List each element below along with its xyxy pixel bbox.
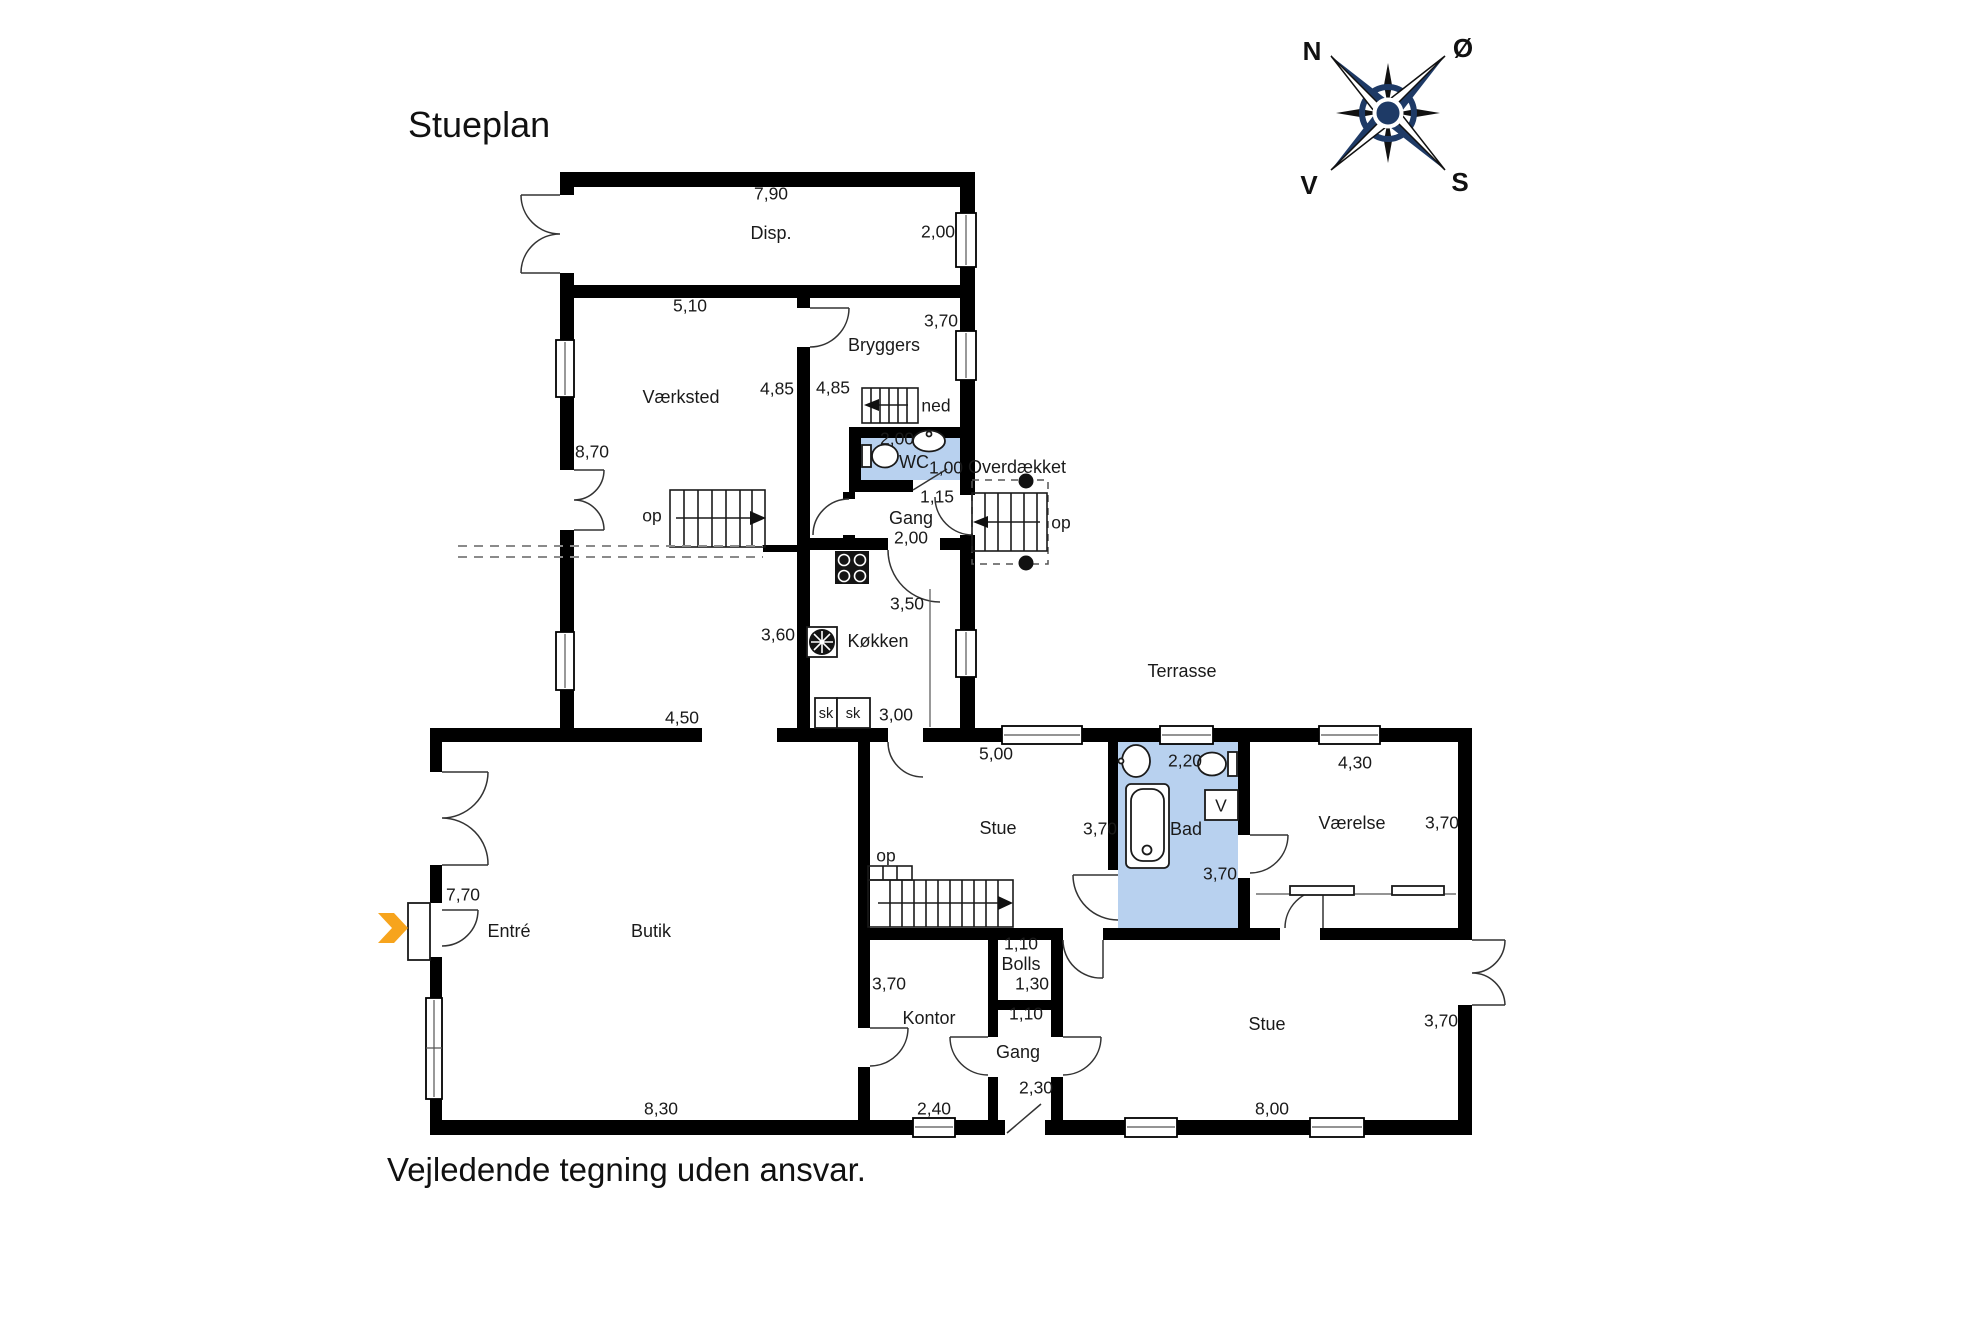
room-label-bryggers: Bryggers (848, 336, 920, 354)
double-door-disp (521, 195, 560, 273)
room-label-wc: WC (899, 453, 929, 471)
door-gang-vaerksted (813, 499, 849, 535)
stairs-outdoor-up (972, 474, 1048, 571)
stair-label-op-vaerksted: op (642, 507, 661, 525)
stove-icon (835, 551, 869, 584)
dim-vaerelse-width: 4,30 (1338, 754, 1372, 772)
dim-butik-top: 4,50 (665, 709, 699, 727)
door-kontor-gang (950, 1037, 988, 1075)
wc-sink-icon (913, 431, 945, 452)
dim-wc-width: 2,00 (880, 430, 914, 448)
dim-koekken-bottom: 3,00 (879, 706, 913, 724)
double-door-butik (442, 772, 488, 865)
dim-stue-mid-depth: 3,70 (1083, 820, 1117, 838)
room-label-stue-mid: Stue (979, 819, 1016, 837)
dim-koekken-depth: 3,50 (890, 595, 924, 613)
dim-gang-north-depth: 2,00 (894, 529, 928, 547)
dim-bryggers-depth2: 4,85 (816, 379, 850, 397)
room-label-vaerksted: Værksted (642, 388, 719, 406)
room-label-gang-south: Gang (996, 1043, 1040, 1061)
dim-bolls-width: 1,10 (1004, 935, 1038, 953)
dim-vaerksted-width: 5,10 (673, 297, 707, 315)
bathtub-icon (1126, 784, 1169, 868)
compass-east-label: Ø (1453, 33, 1473, 63)
room-label-stue-south: Stue (1248, 1015, 1285, 1033)
window (1319, 726, 1380, 744)
compass-rose-icon: N Ø S V (1300, 33, 1473, 200)
stair-label-ned: ned (921, 397, 950, 415)
dim-stue-south-width: 8,00 (1255, 1100, 1289, 1118)
door-gang-stue (1063, 1037, 1101, 1075)
window (1002, 726, 1082, 744)
cabinet-label-sk2: sk (846, 707, 861, 722)
dim-butik-width: 8,30 (644, 1100, 678, 1118)
fan-icon (807, 627, 837, 657)
dim-kontor-width: 2,40 (917, 1100, 951, 1118)
disclaimer-text: Vejledende tegning uden ansvar. (387, 1151, 866, 1189)
dim-vaerksted-height: 8,70 (575, 443, 609, 461)
room-label-vaerelse: Værelse (1318, 814, 1385, 832)
dim-disp-depth: 2,00 (921, 223, 955, 241)
compass-north-label: N (1303, 36, 1322, 66)
dim-stue-mid-width: 5,00 (979, 745, 1013, 763)
dim-kontor-depth: 3,70 (872, 975, 906, 993)
room-label-bolls: Bolls (1001, 955, 1040, 973)
room-label-overdaekket: Overdækket (968, 458, 1066, 476)
double-door-east (1472, 940, 1505, 1005)
page-title: Stueplan (408, 104, 550, 146)
dim-disp-width: 7,90 (754, 185, 788, 203)
double-door-vaerksted (574, 470, 604, 530)
compass-south-label: S (1451, 167, 1468, 197)
door-kontor (870, 1028, 908, 1066)
compass-west-label: V (1300, 170, 1318, 200)
room-label-entre: Entré (487, 922, 530, 940)
bad-toilet-icon (1198, 752, 1237, 776)
room-label-terrasse: Terrasse (1147, 662, 1216, 680)
dim-gang-south-depth: 2,30 (1019, 1079, 1053, 1097)
stair-label-op-stue: op (876, 847, 895, 865)
wardrobe-line (1256, 886, 1456, 895)
room-label-gang-north: Gang (889, 509, 933, 527)
entry-arrow-icon (378, 913, 408, 943)
floorplan-canvas: N Ø S V Stueplan Vejledende tegning uden… (0, 0, 1984, 1323)
door-bryggers (810, 308, 849, 347)
dim-koekken-width: 3,60 (761, 626, 795, 644)
room-label-koekken: Køkken (847, 632, 908, 650)
dim-vaerksted-depth: 4,85 (760, 380, 794, 398)
dim-gang-north-width: 1,15 (920, 488, 954, 506)
window (1125, 1118, 1177, 1137)
window (1160, 726, 1213, 744)
dim-vaerelse-depth: 3,70 (1425, 814, 1459, 832)
dim-bad-depth: 3,70 (1203, 865, 1237, 883)
dim-butik-height: 7,70 (446, 886, 480, 904)
floor-plan-drawing: N Ø S V (0, 0, 1984, 1323)
stairs-bryggers-down (862, 388, 918, 423)
window (1310, 1118, 1364, 1137)
door-koekken-stue (888, 742, 923, 777)
entry-porch (408, 903, 430, 960)
room-label-kontor: Kontor (902, 1009, 955, 1027)
window (426, 998, 442, 1099)
stair-label-op-outside: op (1051, 514, 1070, 532)
stairs-stue-up (868, 866, 1013, 927)
appliance-label-v: V (1215, 797, 1227, 815)
window (913, 1118, 955, 1137)
room-label-disp: Disp. (750, 224, 791, 242)
door-entre (442, 910, 478, 946)
dim-bryggers-depth: 3,70 (924, 312, 958, 330)
dim-bad-width: 2,20 (1168, 752, 1202, 770)
door-south-entrance (1007, 1104, 1041, 1133)
window (556, 632, 574, 690)
dim-gang-south-width: 1,10 (1009, 1005, 1043, 1023)
window (956, 630, 976, 677)
window (956, 331, 976, 380)
door-bad-vaerelse (1250, 835, 1288, 873)
door-stue-stue (1063, 940, 1103, 978)
dim-stue-south-depth: 3,70 (1424, 1012, 1458, 1030)
dim-bolls-depth: 1,30 (1015, 975, 1049, 993)
door-stue-bad (1073, 875, 1118, 920)
window (556, 340, 574, 397)
dim-wc-depth: 1,00 (929, 459, 963, 477)
window (956, 213, 976, 267)
room-label-bad: Bad (1170, 820, 1202, 838)
cabinet-label-sk1: sk (819, 707, 834, 722)
stairs-vaerksted-up (670, 490, 766, 547)
room-label-butik: Butik (631, 922, 671, 940)
